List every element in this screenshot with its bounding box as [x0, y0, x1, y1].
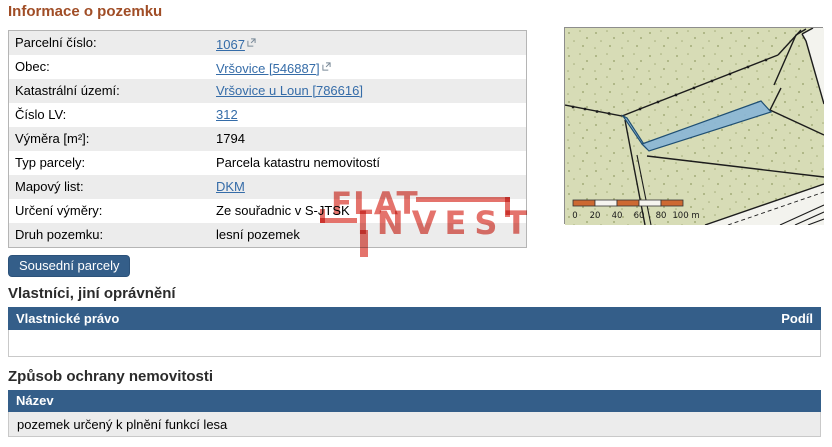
protection-table: Název pozemek určený k plnění funkcí les…: [8, 390, 821, 437]
page-title: Informace o pozemku: [8, 3, 162, 20]
owners-table: Vlastnické právo Podíl: [8, 307, 821, 357]
info-label: Parcelní číslo:: [9, 31, 216, 55]
info-row-land-type: Druh pozemku: lesní pozemek: [9, 223, 526, 247]
info-row-area: Výměra [m²]: 1794: [9, 127, 526, 151]
protection-col-name: Název: [16, 390, 54, 412]
info-label: Určení výměry:: [9, 199, 216, 223]
info-row-cadastral-area: Katastrální území: Vršovice u Loun [7866…: [9, 79, 526, 103]
protection-section-heading: Způsob ochrany nemovitosti: [8, 368, 213, 385]
info-label: Obec:: [9, 55, 216, 79]
scale-label: 20: [590, 211, 601, 221]
owners-section-heading: Vlastníci, jiní oprávnění: [8, 285, 176, 302]
info-row-area-determination: Určení výměry: Ze souřadnic v S-JTSK: [9, 199, 526, 223]
external-link-icon: [247, 31, 256, 55]
scale-label: 100 m: [672, 211, 699, 221]
owners-table-header: Vlastnické právo Podíl: [8, 307, 821, 330]
info-row-map-sheet: Mapový list: DKM: [9, 175, 526, 199]
map-canvas: 0 20 40 60 80 100 m: [565, 28, 824, 225]
protection-table-header: Název: [8, 390, 821, 412]
info-label: Číslo LV:: [9, 103, 216, 127]
owners-col-share: Podíl: [781, 307, 813, 330]
info-label: Druh pozemku:: [9, 223, 216, 247]
cadastral-area-link[interactable]: Vršovice u Loun [786616]: [216, 83, 363, 98]
info-value: Vršovice u Loun [786616]: [216, 79, 526, 103]
info-label: Katastrální území:: [9, 79, 216, 103]
info-value: Ze souřadnic v S-JTSK: [216, 199, 526, 223]
info-value: 312: [216, 103, 526, 127]
info-value: 1067: [216, 31, 526, 55]
info-label: Mapový list:: [9, 175, 216, 199]
info-row-parcel-type: Typ parcely: Parcela katastru nemovitost…: [9, 151, 526, 175]
municipality-link[interactable]: Vršovice [546887]: [216, 61, 320, 76]
info-value: DKM: [216, 175, 526, 199]
cadastral-map[interactable]: 0 20 40 60 80 100 m: [564, 27, 823, 224]
parcel-info-table: Parcelní číslo: 1067 Obec: Vršovice [546…: [8, 30, 527, 248]
info-row-lv-number: Číslo LV: 312: [9, 103, 526, 127]
scale-label: 80: [656, 211, 667, 221]
info-row-municipality: Obec: Vršovice [546887]: [9, 55, 526, 79]
info-label: Výměra [m²]:: [9, 127, 216, 151]
parcel-number-link[interactable]: 1067: [216, 37, 245, 52]
owners-empty-row: [8, 330, 821, 357]
owners-col-ownership: Vlastnické právo: [16, 307, 119, 330]
map-scale-bar: 0 20 40 60 80 100 m: [572, 200, 699, 221]
scale-label: 40: [612, 211, 623, 221]
info-value: Vršovice [546887]: [216, 55, 526, 79]
info-value: lesní pozemek: [216, 223, 526, 247]
scale-label: 0: [572, 211, 577, 221]
map-sheet-link[interactable]: DKM: [216, 179, 245, 194]
info-value: Parcela katastru nemovitostí: [216, 151, 526, 175]
info-value: 1794: [216, 127, 526, 151]
lv-number-link[interactable]: 312: [216, 107, 238, 122]
scale-label: 60: [634, 211, 645, 221]
info-label: Typ parcely:: [9, 151, 216, 175]
neighboring-parcels-button[interactable]: Sousední parcely: [8, 255, 130, 277]
protection-row: pozemek určený k plnění funkcí lesa: [8, 412, 821, 437]
external-link-icon: [322, 55, 331, 79]
info-row-parcel-number: Parcelní číslo: 1067: [9, 31, 526, 55]
